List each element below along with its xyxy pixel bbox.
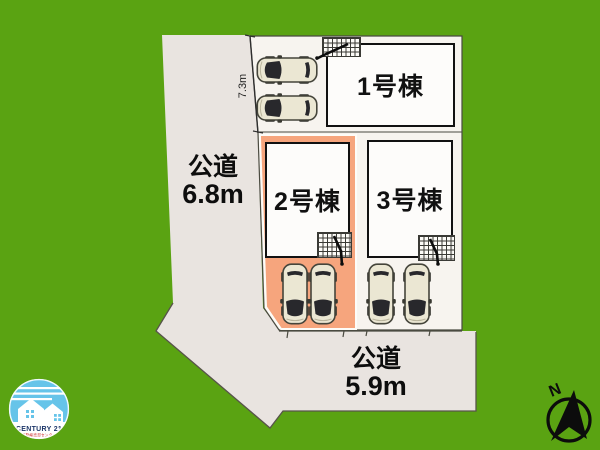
entrance-steps-icon (418, 235, 455, 261)
car-top-view-icon (256, 55, 318, 85)
car-top-view-icon (402, 263, 432, 325)
car-top-view-icon (308, 263, 338, 325)
bottom-road-name: 公道 (328, 347, 424, 373)
building-3-label: 3号棟 (377, 181, 444, 217)
logo-stripe (10, 393, 68, 395)
car-top-view-icon (366, 263, 396, 325)
logo-stripe (14, 387, 64, 389)
logo-brand: CENTURY 21 (16, 426, 62, 433)
left-road-label: 公道 6.8m (166, 155, 260, 208)
entrance-steps-icon (322, 37, 361, 57)
boundary-dimension-label: 7.3m (237, 64, 251, 108)
left-road-name: 公道 (166, 155, 260, 181)
bottom-road-label: 公道 5.9m (328, 347, 424, 400)
century21-logo: CENTURY 21 不動産売却センター (8, 378, 70, 440)
building-2-label: 2号棟 (274, 182, 341, 218)
left-road-width: 6.8m (166, 181, 260, 209)
car-top-view-icon (256, 93, 318, 123)
bottom-road-width: 5.9m (328, 373, 424, 401)
site-plan: 1号棟 2号棟 3号棟 (0, 0, 600, 450)
entrance-steps-icon (317, 232, 352, 258)
building-1-label: 1号棟 (357, 67, 424, 103)
car-top-view-icon (280, 263, 310, 325)
